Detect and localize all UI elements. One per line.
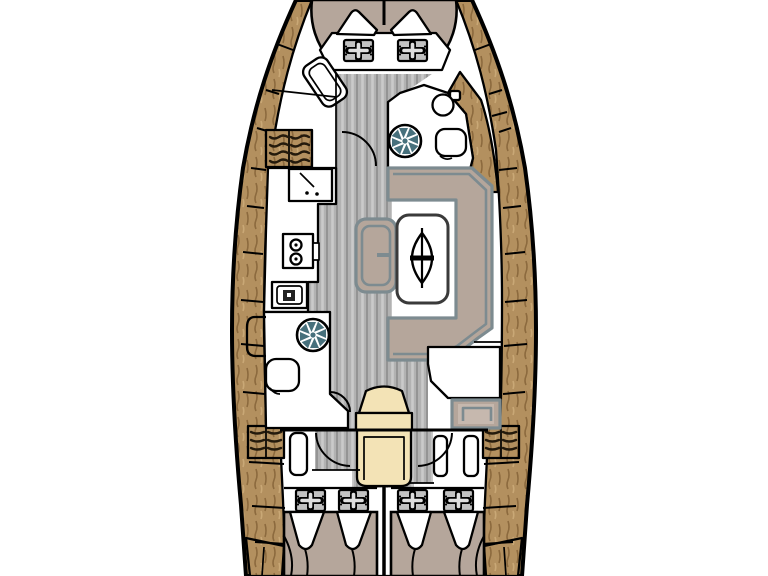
- galley-stove: [283, 234, 319, 268]
- salon-table: [397, 215, 448, 303]
- boat-floor-plan: [0, 0, 768, 576]
- louvered-locker-port-aft: [248, 426, 284, 458]
- aft-shower-drain: [297, 319, 329, 351]
- stairs-top: [359, 387, 409, 414]
- aft-hatch-starboard-inner: [398, 490, 427, 511]
- forward-head-toilet: [436, 129, 466, 159]
- companionway: [356, 387, 412, 487]
- nav-seat: [452, 400, 500, 428]
- salon-bench: [356, 219, 396, 292]
- aft-cabin-port-berth: [284, 512, 377, 576]
- galley-locker: [289, 169, 332, 201]
- aft-hatch-port-inner: [339, 490, 368, 511]
- bow-hatch-port: [344, 40, 373, 61]
- bow-hatch-starboard: [398, 40, 427, 61]
- louvered-locker-starboard-aft: [483, 426, 519, 458]
- boat-floor-plan-page: [0, 0, 768, 576]
- stairs-lower: [357, 430, 411, 486]
- v-berth-foot: [320, 33, 450, 70]
- aft-head-toilet: [266, 359, 299, 394]
- aft-hatch-port-outer: [296, 490, 325, 511]
- galley-sink: [272, 282, 307, 308]
- chart-table: [428, 347, 500, 398]
- forward-shower-drain: [389, 125, 421, 157]
- aft-cabin-starboard-berth: [391, 512, 484, 576]
- stairs-mid: [356, 413, 412, 430]
- louvered-locker-port-fwd: [266, 130, 312, 167]
- aft-hatch-starboard-outer: [444, 490, 473, 511]
